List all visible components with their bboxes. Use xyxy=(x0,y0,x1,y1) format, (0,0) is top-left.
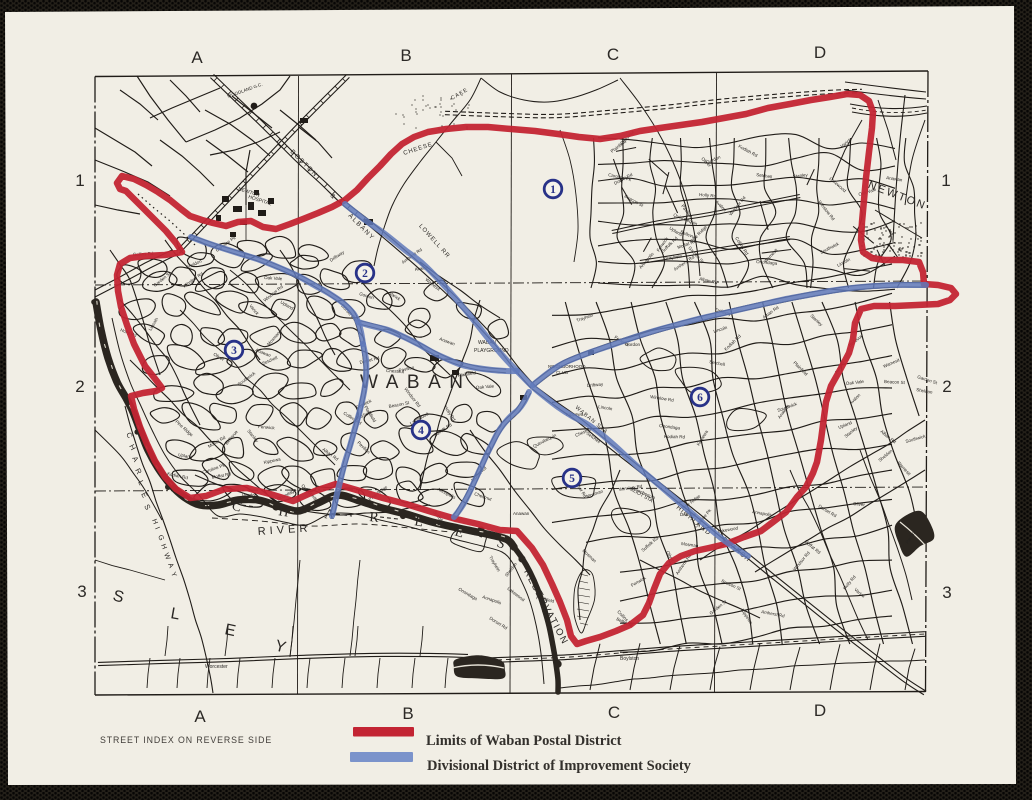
svg-text:Worcester: Worcester xyxy=(205,664,228,670)
svg-text:B: B xyxy=(402,704,413,723)
svg-text:5: 5 xyxy=(569,473,575,485)
svg-text:1: 1 xyxy=(941,171,950,190)
svg-text:3: 3 xyxy=(231,345,237,357)
svg-text:4: 4 xyxy=(418,425,424,437)
svg-text:1: 1 xyxy=(550,184,556,196)
svg-text:2: 2 xyxy=(942,377,951,396)
svg-text:C: C xyxy=(607,45,619,64)
svg-text:Limits of Waban Postal Dis: Limits of Waban Postal District xyxy=(426,733,622,749)
svg-text:WABAN: WABAN xyxy=(360,372,471,393)
svg-text:A: A xyxy=(191,48,203,67)
svg-text:6: 6 xyxy=(697,392,703,404)
svg-text:2: 2 xyxy=(362,268,368,280)
svg-text:3: 3 xyxy=(942,583,951,602)
svg-text:STREET INDEX ON REVERSE SIDE: STREET INDEX ON REVERSE SIDE xyxy=(100,735,272,745)
svg-text:Boylston: Boylston xyxy=(620,656,639,662)
svg-text:D: D xyxy=(814,701,826,720)
svg-text:CLUB: CLUB xyxy=(556,370,568,375)
svg-text:A: A xyxy=(194,707,206,726)
svg-text:D: D xyxy=(814,43,826,62)
svg-text:Kodiah Rd: Kodiah Rd xyxy=(664,434,686,439)
svg-text:Divisional District of Impr: Divisional District of Improvement Socie… xyxy=(427,758,692,774)
svg-text:1: 1 xyxy=(75,171,84,190)
svg-text:C: C xyxy=(608,703,620,722)
svg-text:3: 3 xyxy=(77,582,86,601)
svg-text:Anawan: Anawan xyxy=(513,511,530,516)
svg-text:2: 2 xyxy=(75,377,84,396)
svg-text:B: B xyxy=(400,46,411,65)
